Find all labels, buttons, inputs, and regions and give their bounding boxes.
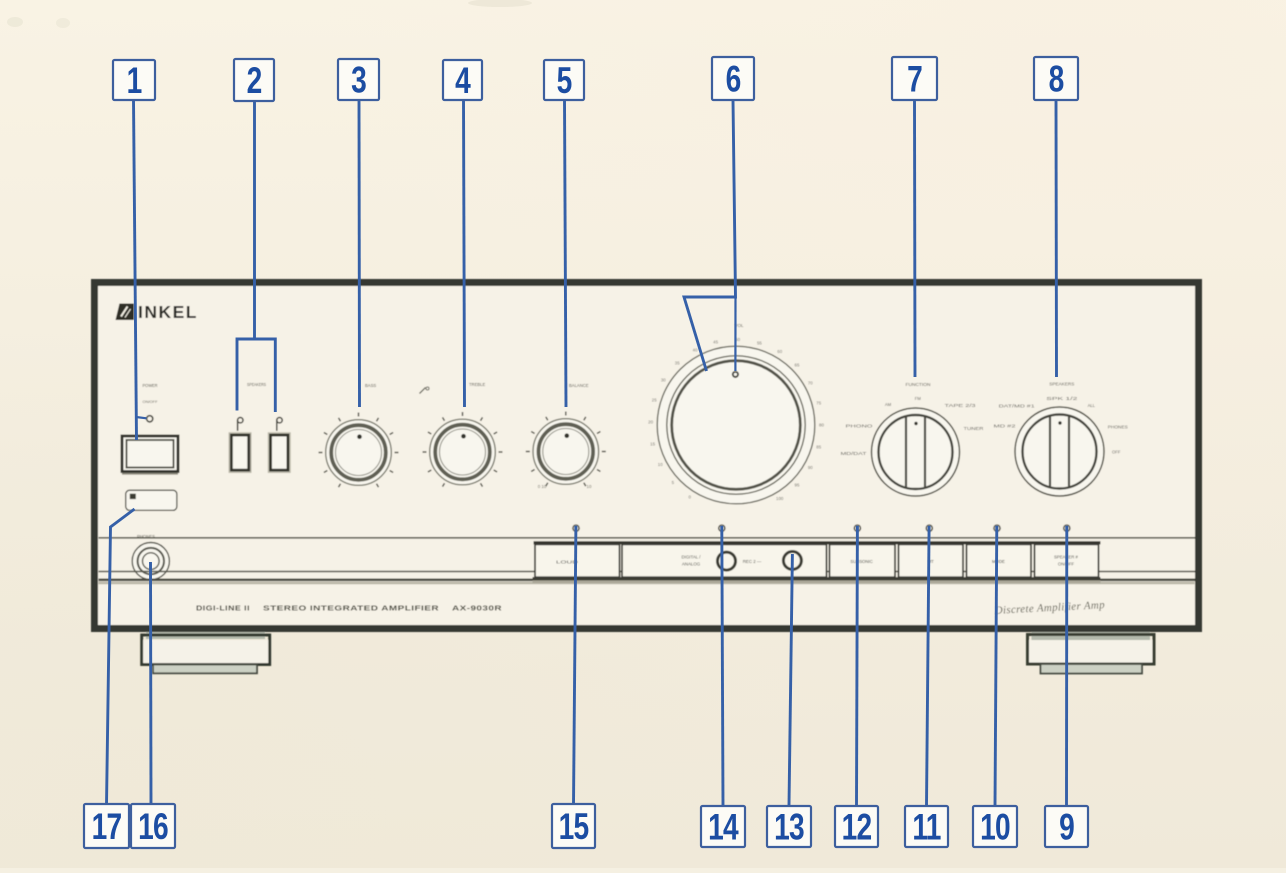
svg-text:SPEAKERS: SPEAKERS <box>1049 382 1074 387</box>
svg-text:INKEL: INKEL <box>138 302 198 322</box>
svg-text:2: 2 <box>247 59 262 101</box>
svg-text:1: 1 <box>127 59 142 101</box>
svg-text:20: 20 <box>648 420 653 425</box>
svg-text:17: 17 <box>92 805 122 847</box>
svg-text:15: 15 <box>559 805 589 847</box>
svg-text:5: 5 <box>557 59 572 101</box>
svg-text:80: 80 <box>819 423 824 428</box>
svg-text:13: 13 <box>774 806 804 848</box>
svg-text:MD/DAT: MD/DAT <box>841 451 868 456</box>
svg-text:TREBLE: TREBLE <box>469 382 485 387</box>
svg-text:100: 100 <box>776 496 784 501</box>
svg-text:6: 6 <box>726 58 741 100</box>
svg-text:SPEAKERS: SPEAKERS <box>247 382 266 387</box>
svg-text:16: 16 <box>138 805 168 847</box>
svg-text:55: 55 <box>757 340 762 345</box>
svg-text:10: 10 <box>587 484 592 489</box>
svg-text:TAPE 2/3: TAPE 2/3 <box>945 403 977 408</box>
svg-text:OFF: OFF <box>1112 450 1121 455</box>
svg-text:30: 30 <box>661 378 666 383</box>
svg-text:PHONO: PHONO <box>846 424 874 429</box>
svg-text:25: 25 <box>652 398 657 403</box>
svg-text:10: 10 <box>980 806 1010 848</box>
svg-text:MD #2: MD #2 <box>994 424 1017 429</box>
svg-text:85: 85 <box>816 445 821 450</box>
svg-text:ANALOG: ANALOG <box>682 562 701 567</box>
svg-text:STEREO INTEGRATED AMPLIFIER: STEREO INTEGRATED AMPLIFIER <box>263 606 439 613</box>
svg-text:70: 70 <box>808 380 813 385</box>
svg-text:TUNER: TUNER <box>964 426 984 431</box>
svg-text:ON/OFF: ON/OFF <box>143 399 159 404</box>
svg-text:PHONES: PHONES <box>1108 425 1128 430</box>
svg-text:MODE: MODE <box>992 559 1005 564</box>
svg-text:10: 10 <box>658 462 663 467</box>
svg-text:9: 9 <box>1059 806 1074 848</box>
svg-text:BALANCE: BALANCE <box>569 383 589 388</box>
svg-text:AX-9030R: AX-9030R <box>452 606 502 613</box>
svg-text:15: 15 <box>650 441 655 446</box>
svg-text:DAT/MD #1: DAT/MD #1 <box>999 404 1036 409</box>
svg-text:7: 7 <box>907 58 922 100</box>
svg-text:SUBSONIC: SUBSONIC <box>850 559 872 564</box>
svg-text:3: 3 <box>351 59 366 101</box>
svg-text:SPK 1/2: SPK 1/2 <box>1046 396 1078 401</box>
svg-text:DIGI-LINE II: DIGI-LINE II <box>196 604 250 613</box>
svg-text:35: 35 <box>675 361 680 366</box>
svg-text:75: 75 <box>816 401 821 406</box>
svg-text:POWER: POWER <box>143 383 158 388</box>
svg-text:14: 14 <box>708 806 739 848</box>
svg-text:95: 95 <box>795 483 800 488</box>
svg-text:FM: FM <box>915 396 922 401</box>
svg-text:12: 12 <box>842 806 872 848</box>
svg-text:BASS: BASS <box>365 383 376 388</box>
svg-text:8: 8 <box>1049 58 1064 100</box>
svg-text:REC 2 —: REC 2 — <box>743 559 762 564</box>
svg-text:0 10: 0 10 <box>538 484 547 489</box>
svg-text:AM: AM <box>885 402 892 407</box>
svg-text:45: 45 <box>713 340 718 345</box>
svg-text:ALL: ALL <box>1088 403 1096 408</box>
svg-text:11: 11 <box>912 806 941 848</box>
svg-text:65: 65 <box>795 363 800 368</box>
svg-text:FUNCTION: FUNCTION <box>906 382 931 387</box>
svg-text:DIGITAL /: DIGITAL / <box>681 555 701 560</box>
svg-text:40: 40 <box>693 348 698 353</box>
svg-text:60: 60 <box>777 349 782 354</box>
svg-text:4: 4 <box>455 59 471 101</box>
svg-text:90: 90 <box>808 465 813 470</box>
